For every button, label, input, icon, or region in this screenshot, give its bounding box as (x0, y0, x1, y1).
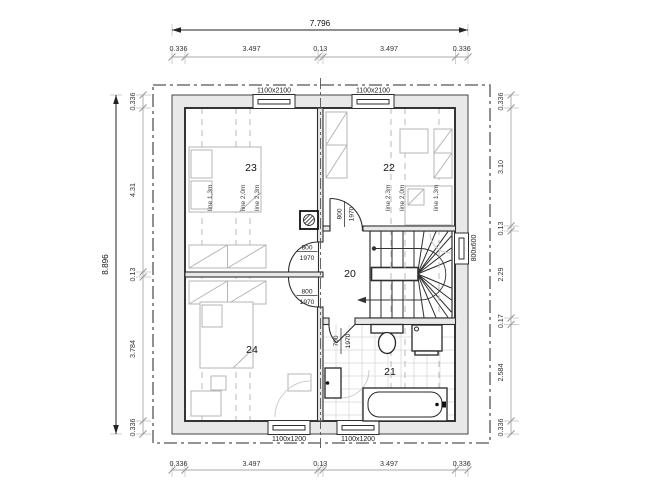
svg-text:1970: 1970 (300, 299, 315, 306)
room-label-23: 23 (245, 162, 257, 174)
floor-plan-page: 7.796 0.336 3.497 0.13 3.497 0.336 0.336… (0, 0, 647, 495)
desk (191, 391, 221, 416)
stair-direction-arrow (357, 297, 366, 303)
svg-text:0.17: 0.17 (496, 314, 505, 328)
door-label-room22: 800 1970 (337, 201, 356, 227)
chair (211, 376, 226, 390)
svg-text:line 1,3m: line 1,3m (433, 185, 440, 211)
dimension-left: 8.896 0.336 4.31 0.13 3.784 0.336 (101, 92, 151, 438)
desk (400, 129, 428, 153)
room-label-20: 20 (344, 268, 356, 280)
dim-total-width: 7.796 (310, 19, 331, 28)
svg-text:3.497: 3.497 (243, 459, 261, 468)
floor-plan-canvas: 7.796 0.336 3.497 0.13 3.497 0.336 0.336… (0, 0, 647, 495)
room-label-22: 22 (383, 162, 395, 174)
svg-text:line 2,0m: line 2,0m (399, 185, 406, 211)
svg-text:800: 800 (301, 289, 312, 296)
toilet (371, 325, 403, 354)
svg-text:1970: 1970 (345, 333, 352, 348)
svg-text:line 1,3m: line 1,3m (207, 185, 214, 211)
svg-text:0.336: 0.336 (128, 419, 137, 437)
svg-text:0.336: 0.336 (496, 419, 505, 437)
svg-text:0.336: 0.336 (453, 459, 471, 468)
wall-room22-hall (363, 226, 456, 231)
wall-bath-stub (323, 318, 329, 325)
dimension-top: 7.796 0.336 3.497 0.13 3.497 0.336 (169, 19, 472, 64)
door-label-room23: 800 1970 (297, 245, 318, 263)
window-top-right (352, 95, 394, 109)
svg-text:3.497: 3.497 (380, 459, 398, 468)
svg-text:line 2,3m: line 2,3m (385, 185, 392, 211)
svg-text:line 2,0m: line 2,0m (240, 185, 247, 211)
svg-text:0.13: 0.13 (496, 222, 505, 236)
bed (200, 302, 253, 368)
svg-text:3.10: 3.10 (496, 160, 505, 174)
window-bottom-right (337, 421, 379, 435)
window-label-bottom-right: 1100x1200 (341, 436, 375, 443)
walk-line-start-dot (372, 246, 376, 250)
svg-text:800: 800 (301, 245, 312, 252)
bathtub (363, 388, 447, 421)
stair-spine-wall (372, 268, 419, 281)
wall-room23-room24 (185, 272, 323, 277)
window-top-left (253, 95, 295, 109)
wall-bathroom-top (355, 318, 456, 325)
svg-text:line 2,3m: line 2,3m (254, 185, 261, 211)
svg-text:3.497: 3.497 (243, 44, 261, 53)
window-label-top-left: 1100x2100 (257, 88, 291, 95)
door-label-room24: 800 1970 (297, 289, 318, 307)
svg-text:3.784: 3.784 (128, 340, 137, 358)
window-bottom-left (268, 421, 310, 435)
washing-machine (412, 325, 442, 355)
room-label-24: 24 (246, 344, 258, 356)
svg-text:0.13: 0.13 (313, 44, 327, 53)
svg-text:700: 700 (333, 335, 340, 346)
window-right-niche (455, 233, 469, 264)
svg-text:2.29: 2.29 (496, 268, 505, 282)
svg-text:1970: 1970 (300, 255, 315, 262)
svg-text:2.584: 2.584 (496, 364, 505, 382)
window-label-top-right: 1100x2100 (356, 88, 390, 95)
window-label-right-niche: 800x600 (471, 234, 478, 261)
svg-text:1970: 1970 (349, 206, 356, 221)
svg-text:800: 800 (337, 208, 344, 219)
svg-text:0.13: 0.13 (128, 268, 137, 282)
door-room22 (330, 199, 363, 232)
window-label-bottom-left: 1100x1200 (272, 436, 306, 443)
svg-text:4.31: 4.31 (128, 183, 137, 197)
wall-room22-stub (323, 226, 330, 231)
room-label-21: 21 (384, 366, 396, 378)
svg-text:0.13: 0.13 (313, 459, 327, 468)
svg-text:0.336: 0.336 (496, 93, 505, 111)
dim-total-height: 8.896 (101, 254, 110, 275)
chimney (300, 211, 318, 229)
svg-text:0.336: 0.336 (453, 44, 471, 53)
svg-text:3.497: 3.497 (380, 44, 398, 53)
svg-text:0.336: 0.336 (170, 44, 188, 53)
bathtub-faucet (435, 403, 439, 407)
dimension-bottom: 0.336 3.497 0.13 3.497 0.336 (169, 459, 472, 477)
svg-text:0.336: 0.336 (128, 93, 137, 111)
svg-text:0.336: 0.336 (170, 459, 188, 468)
dimension-right: 0.336 3.10 0.13 2.29 0.17 2.584 0.336 (496, 92, 519, 438)
